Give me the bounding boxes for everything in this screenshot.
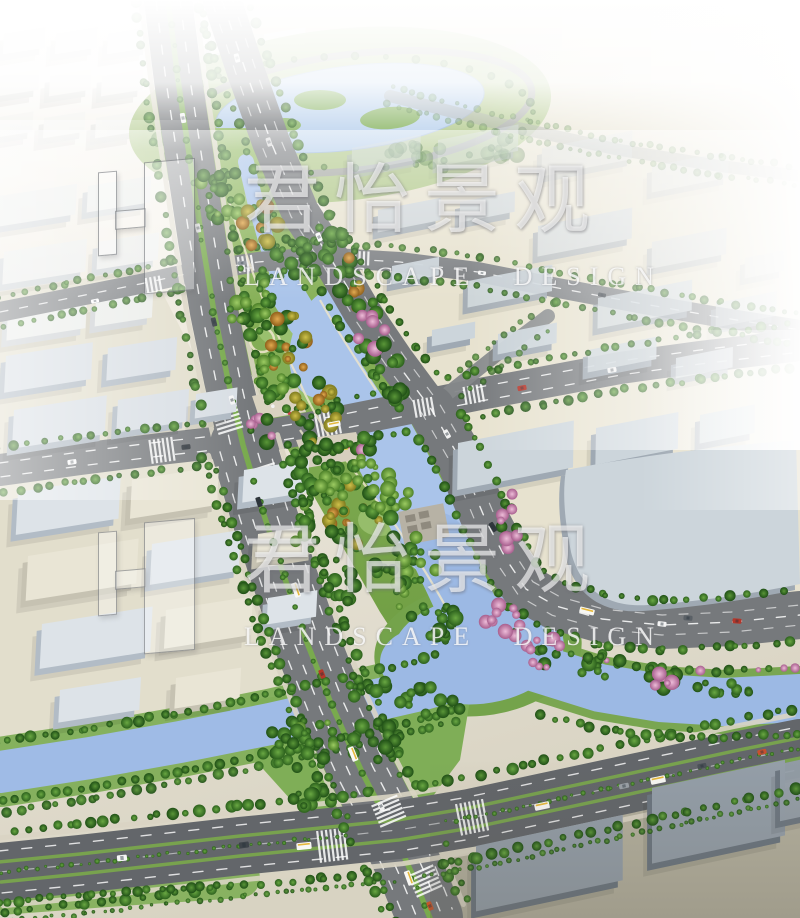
rendering-stage: 君怡景观 LANDSCAPE DESIGN 君怡景观 LANDSCAPE DES…: [0, 0, 800, 918]
aerial-rendering: [0, 0, 800, 918]
